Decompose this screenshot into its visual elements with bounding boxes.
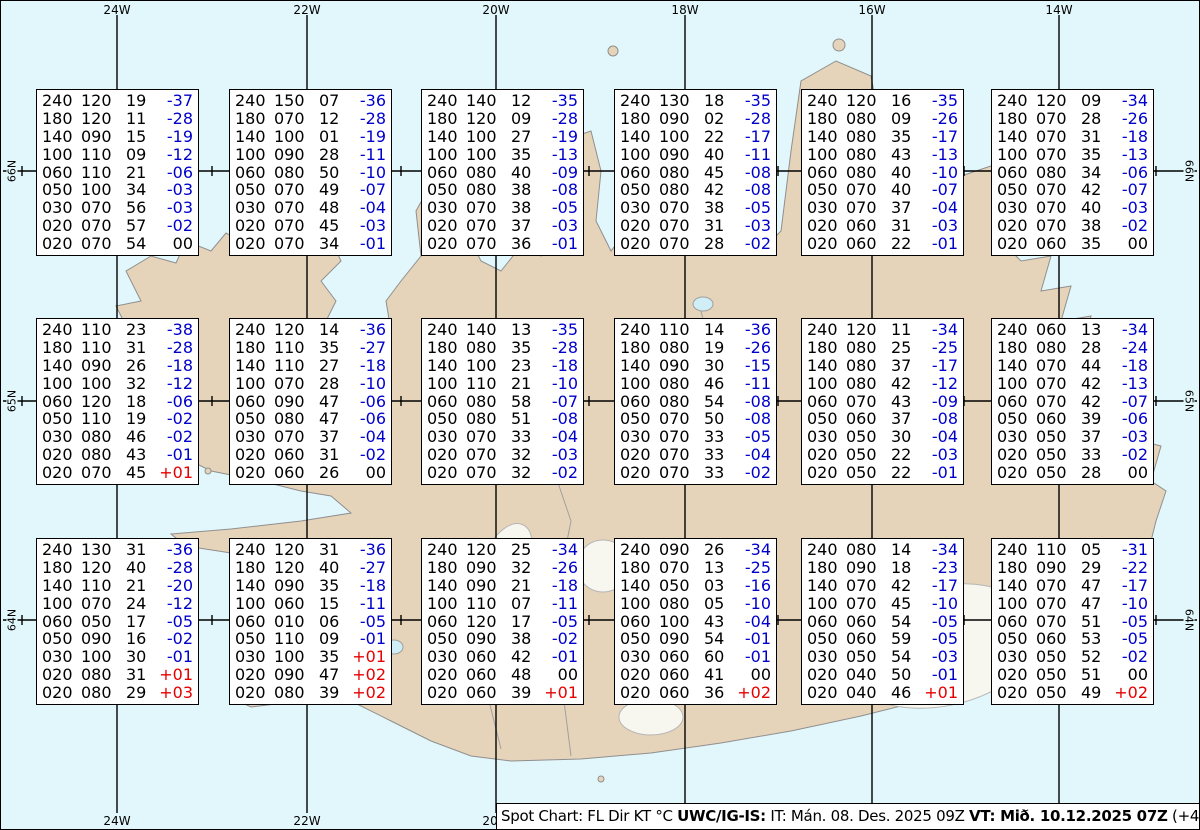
kt-cell: 42 <box>704 181 729 199</box>
dir-cell: 090 <box>274 393 313 411</box>
dir-cell: 120 <box>846 321 885 339</box>
dir-cell: 080 <box>659 595 698 613</box>
dir-cell: 060 <box>1036 235 1075 253</box>
dir-cell: 080 <box>659 164 698 182</box>
fl-cell: 180 <box>42 110 75 128</box>
temp-cell: -06 <box>1112 164 1148 182</box>
dir-cell: 070 <box>274 375 313 393</box>
kt-cell: 38 <box>511 630 536 648</box>
fl-cell: 240 <box>235 92 268 110</box>
temp-cell: -02 <box>735 235 771 253</box>
temp-cell: +03 <box>157 684 193 702</box>
dir-cell: 080 <box>274 164 313 182</box>
fl-cell: 020 <box>620 217 653 235</box>
temp-cell: -08 <box>735 410 771 428</box>
temp-cell: -18 <box>157 357 193 375</box>
fl-cell: 240 <box>620 541 653 559</box>
temp-cell: -35 <box>735 92 771 110</box>
fl-cell: 060 <box>235 164 268 182</box>
dir-cell: 070 <box>659 559 698 577</box>
dir-cell: 070 <box>659 428 698 446</box>
fl-cell: 240 <box>42 321 75 339</box>
spot-box: 24013031-3618012040-2814011021-201000702… <box>36 538 199 705</box>
temp-cell: -09 <box>922 393 958 411</box>
dir-cell: 070 <box>1036 128 1075 146</box>
dir-cell: 120 <box>466 613 505 631</box>
spot-row: 05011019-02 <box>42 410 193 428</box>
kt-cell: 28 <box>319 375 344 393</box>
temp-cell: -05 <box>735 428 771 446</box>
kt-cell: 07 <box>319 92 344 110</box>
dir-cell: 080 <box>846 164 885 182</box>
caption-text-bold: UWC/IG-IS: <box>677 807 766 825</box>
temp-cell: -36 <box>350 92 386 110</box>
temp-cell: 00 <box>1112 235 1148 253</box>
kt-cell: 03 <box>704 577 729 595</box>
spot-row: 02006031-03 <box>807 217 958 235</box>
spot-row: 10007045-10 <box>807 595 958 613</box>
kt-cell: 23 <box>511 357 536 375</box>
kt-cell: 38 <box>511 181 536 199</box>
kt-cell: 46 <box>891 684 916 702</box>
fl-cell: 020 <box>997 684 1030 702</box>
fl-cell: 240 <box>620 92 653 110</box>
spot-row: 18009018-23 <box>807 559 958 577</box>
kt-cell: 56 <box>126 199 151 217</box>
spot-row: 05011009-01 <box>235 630 386 648</box>
temp-cell: -26 <box>1112 110 1148 128</box>
spot-row: 0200603500 <box>997 235 1148 253</box>
kt-cell: 06 <box>319 613 344 631</box>
dir-cell: 070 <box>1036 393 1075 411</box>
fl-cell: 030 <box>620 648 653 666</box>
dir-cell: 070 <box>1036 146 1075 164</box>
dir-cell: 050 <box>1036 446 1075 464</box>
temp-cell: -04 <box>350 199 386 217</box>
fl-cell: 020 <box>807 217 840 235</box>
spot-row: 14011027-18 <box>235 357 386 375</box>
temp-cell: -13 <box>542 146 578 164</box>
spot-row: 24012019-37 <box>42 92 193 110</box>
fl-cell: 050 <box>42 630 75 648</box>
spot-row: 14009030-15 <box>620 357 771 375</box>
spot-row: 05007049-07 <box>235 181 386 199</box>
temp-cell: -07 <box>1112 181 1148 199</box>
dir-cell: 050 <box>1036 648 1075 666</box>
spot-row: 02008039+02 <box>235 684 386 702</box>
dir-cell: 050 <box>846 428 885 446</box>
spot-row: 24012014-36 <box>235 321 386 339</box>
fl-cell: 060 <box>807 613 840 631</box>
temp-cell: -01 <box>922 235 958 253</box>
temp-cell: -28 <box>350 110 386 128</box>
spot-row: 05009038-02 <box>427 630 578 648</box>
kt-cell: 52 <box>1081 648 1106 666</box>
dir-cell: 080 <box>81 684 120 702</box>
fl-cell: 100 <box>42 595 75 613</box>
spot-row: 14010023-18 <box>427 357 578 375</box>
kt-cell: 51 <box>1081 666 1106 684</box>
spot-row: 10011009-12 <box>42 146 193 164</box>
kt-cell: 09 <box>319 630 344 648</box>
kt-cell: 28 <box>1081 339 1106 357</box>
kt-cell: 13 <box>1081 321 1106 339</box>
longitude-label-top: 18W <box>671 4 698 16</box>
temp-cell: -02 <box>157 428 193 446</box>
spot-row: 02007034-01 <box>235 235 386 253</box>
fl-cell: 240 <box>807 321 840 339</box>
temp-cell: -08 <box>922 410 958 428</box>
dir-cell: 070 <box>1036 199 1075 217</box>
fl-cell: 020 <box>42 235 75 253</box>
kt-cell: 38 <box>1081 217 1106 235</box>
kt-cell: 54 <box>126 235 151 253</box>
spot-row: 14009021-18 <box>427 577 578 595</box>
fl-cell: 020 <box>42 684 75 702</box>
temp-cell: -31 <box>1112 541 1148 559</box>
caption-bar: Spot Chart: FL Dir KT °C UWC/IG-IS: IT: … <box>496 803 1199 829</box>
fl-cell: 020 <box>427 446 460 464</box>
kt-cell: 13 <box>511 321 536 339</box>
kt-cell: 31 <box>319 541 344 559</box>
temp-cell: -25 <box>922 339 958 357</box>
dir-cell: 120 <box>466 110 505 128</box>
dir-cell: 070 <box>846 577 885 595</box>
temp-cell: -02 <box>157 410 193 428</box>
temp-cell: -05 <box>735 199 771 217</box>
dir-cell: 070 <box>1036 181 1075 199</box>
fl-cell: 100 <box>42 375 75 393</box>
kt-cell: 11 <box>126 110 151 128</box>
spot-row: 18012040-28 <box>42 559 193 577</box>
dir-cell: 080 <box>846 357 885 375</box>
temp-cell: -11 <box>350 146 386 164</box>
kt-cell: 39 <box>319 684 344 702</box>
kt-cell: 35 <box>511 146 536 164</box>
latitude-label-right: 64N <box>1184 607 1195 633</box>
fl-cell: 020 <box>807 684 840 702</box>
fl-cell: 050 <box>427 410 460 428</box>
dir-cell: 100 <box>466 357 505 375</box>
spot-row: 02007028-02 <box>620 235 771 253</box>
spot-row: 06009047-06 <box>235 393 386 411</box>
fl-cell: 020 <box>620 684 653 702</box>
spot-row: 05006037-08 <box>807 410 958 428</box>
dir-cell: 060 <box>274 464 313 482</box>
fl-cell: 100 <box>997 375 1030 393</box>
fl-cell: 020 <box>427 684 460 702</box>
kt-cell: 42 <box>1081 375 1106 393</box>
dir-cell: 090 <box>81 128 120 146</box>
spot-row: 02007038-02 <box>997 217 1148 235</box>
spot-row: 02008043-01 <box>42 446 193 464</box>
fl-cell: 060 <box>427 613 460 631</box>
latitude-label-right: 65N <box>1184 388 1195 414</box>
spot-row: 06006054-05 <box>807 613 958 631</box>
temp-cell: -08 <box>735 393 771 411</box>
spot-row: 14009035-18 <box>235 577 386 595</box>
spot-box: 24012025-3418009032-2614009021-181001100… <box>421 538 584 705</box>
dir-cell: 090 <box>1036 559 1075 577</box>
fl-cell: 140 <box>997 357 1030 375</box>
spot-row: 10006015-11 <box>235 595 386 613</box>
spot-row: 14005003-16 <box>620 577 771 595</box>
spot-row: 06008054-08 <box>620 393 771 411</box>
kt-cell: 23 <box>126 321 151 339</box>
temp-cell: -37 <box>157 92 193 110</box>
spot-row: 03007038-05 <box>620 199 771 217</box>
spot-row: 06011021-06 <box>42 164 193 182</box>
temp-cell: -12 <box>157 595 193 613</box>
caption-text: Spot Chart: FL Dir KT °C <box>501 807 677 825</box>
kt-cell: 28 <box>1081 464 1106 482</box>
spot-row: 02007033-04 <box>620 446 771 464</box>
lake <box>693 297 713 311</box>
kt-cell: 22 <box>891 464 916 482</box>
spot-row: 06008045-08 <box>620 164 771 182</box>
spot-row: 24008014-34 <box>807 541 958 559</box>
spot-row: 18009032-26 <box>427 559 578 577</box>
temp-cell: -03 <box>542 446 578 464</box>
spot-row: 02005049+02 <box>997 684 1148 702</box>
fl-cell: 180 <box>235 110 268 128</box>
kt-cell: 45 <box>891 595 916 613</box>
temp-cell: -01 <box>542 648 578 666</box>
dir-cell: 110 <box>274 357 313 375</box>
spot-row: 10010032-12 <box>42 375 193 393</box>
dir-cell: 110 <box>81 577 120 595</box>
temp-cell: -09 <box>542 164 578 182</box>
fl-cell: 060 <box>807 393 840 411</box>
temp-cell: -19 <box>157 128 193 146</box>
kt-cell: 27 <box>511 128 536 146</box>
temp-cell: +01 <box>157 464 193 482</box>
dir-cell: 070 <box>274 181 313 199</box>
kt-cell: 35 <box>319 339 344 357</box>
dir-cell: 070 <box>274 428 313 446</box>
temp-cell: -06 <box>157 393 193 411</box>
fl-cell: 050 <box>807 630 840 648</box>
fl-cell: 020 <box>620 464 653 482</box>
fl-cell: 020 <box>997 666 1030 684</box>
temp-cell: -01 <box>350 235 386 253</box>
spot-row: 03005052-02 <box>997 648 1148 666</box>
kt-cell: 01 <box>319 128 344 146</box>
temp-cell: -28 <box>157 110 193 128</box>
dir-cell: 080 <box>659 393 698 411</box>
kt-cell: 22 <box>704 128 729 146</box>
kt-cell: 45 <box>126 464 151 482</box>
fl-cell: 030 <box>997 199 1030 217</box>
dir-cell: 010 <box>274 613 313 631</box>
kt-cell: 25 <box>891 339 916 357</box>
dir-cell: 070 <box>659 446 698 464</box>
kt-cell: 26 <box>126 357 151 375</box>
temp-cell: -02 <box>350 446 386 464</box>
fl-cell: 020 <box>620 446 653 464</box>
fl-cell: 030 <box>997 648 1030 666</box>
kt-cell: 19 <box>126 92 151 110</box>
spot-row: 02005022-01 <box>807 464 958 482</box>
temp-cell: -04 <box>735 446 771 464</box>
longitude-label-top: 24W <box>103 4 130 16</box>
dir-cell: 080 <box>1036 164 1075 182</box>
temp-cell: -35 <box>542 321 578 339</box>
kt-cell: 43 <box>891 146 916 164</box>
fl-cell: 140 <box>235 128 268 146</box>
dir-cell: 070 <box>274 110 313 128</box>
kt-cell: 44 <box>1081 357 1106 375</box>
kt-cell: 19 <box>126 410 151 428</box>
kt-cell: 37 <box>891 199 916 217</box>
spot-row: 02006036+02 <box>620 684 771 702</box>
dir-cell: 120 <box>81 110 120 128</box>
spot-row: 02007032-03 <box>427 446 578 464</box>
spot-row: 06008040-10 <box>807 164 958 182</box>
fl-cell: 240 <box>427 541 460 559</box>
fl-cell: 100 <box>42 146 75 164</box>
temp-cell: -36 <box>350 541 386 559</box>
fl-cell: 030 <box>807 428 840 446</box>
fl-cell: 180 <box>620 339 653 357</box>
spot-box: 24013018-3518009002-2814010022-171000904… <box>614 89 777 256</box>
spot-row: 06005017-05 <box>42 613 193 631</box>
dir-cell: 070 <box>1036 357 1075 375</box>
fl-cell: 140 <box>620 128 653 146</box>
dir-cell: 090 <box>274 577 313 595</box>
kt-cell: 12 <box>511 92 536 110</box>
kt-cell: 37 <box>891 410 916 428</box>
fl-cell: 140 <box>42 357 75 375</box>
kt-cell: 40 <box>319 559 344 577</box>
spot-box: 24014013-3518008035-2814010023-181001102… <box>421 318 584 485</box>
temp-cell: -02 <box>542 630 578 648</box>
fl-cell: 140 <box>235 577 268 595</box>
dir-cell: 070 <box>81 235 120 253</box>
dir-cell: 070 <box>1036 595 1075 613</box>
fl-cell: 050 <box>997 410 1030 428</box>
fl-cell: 180 <box>807 110 840 128</box>
spot-row: 02006022-01 <box>807 235 958 253</box>
temp-cell: -16 <box>735 577 771 595</box>
fl-cell: 100 <box>427 146 460 164</box>
dir-cell: 150 <box>274 92 313 110</box>
spot-row: 03005037-03 <box>997 428 1148 446</box>
fl-cell: 020 <box>42 666 75 684</box>
spot-row: 10007047-10 <box>997 595 1148 613</box>
kt-cell: 50 <box>319 164 344 182</box>
spot-row: 10007035-13 <box>997 146 1148 164</box>
dir-cell: 060 <box>846 613 885 631</box>
spot-row: 05007042-07 <box>997 181 1148 199</box>
dir-cell: 050 <box>1036 666 1075 684</box>
dir-cell: 050 <box>1036 464 1075 482</box>
dir-cell: 070 <box>466 446 505 464</box>
fl-cell: 140 <box>997 577 1030 595</box>
spot-row: 24012016-35 <box>807 92 958 110</box>
temp-cell: 00 <box>542 666 578 684</box>
island <box>205 468 211 474</box>
spot-row: 18009002-28 <box>620 110 771 128</box>
temp-cell: -12 <box>922 375 958 393</box>
spot-box: 24008014-3418009018-2314007042-171000704… <box>801 538 964 705</box>
kt-cell: 33 <box>704 464 729 482</box>
spot-row: 14008037-17 <box>807 357 958 375</box>
fl-cell: 180 <box>235 339 268 357</box>
dir-cell: 130 <box>659 92 698 110</box>
temp-cell: -28 <box>735 110 771 128</box>
spot-box: 24011023-3818011031-2814009026-181001003… <box>36 318 199 485</box>
kt-cell: 40 <box>891 164 916 182</box>
dir-cell: 120 <box>81 92 120 110</box>
dir-cell: 080 <box>81 666 120 684</box>
temp-cell: 00 <box>157 235 193 253</box>
temp-cell: -36 <box>157 541 193 559</box>
dir-cell: 110 <box>81 410 120 428</box>
kt-cell: 18 <box>704 92 729 110</box>
kt-cell: 31 <box>126 339 151 357</box>
temp-cell: -34 <box>1112 92 1148 110</box>
kt-cell: 46 <box>126 428 151 446</box>
spot-row: 18011031-28 <box>42 339 193 357</box>
dir-cell: 070 <box>81 595 120 613</box>
kt-cell: 21 <box>126 577 151 595</box>
spot-row: 24011014-36 <box>620 321 771 339</box>
temp-cell: -17 <box>1112 577 1148 595</box>
fl-cell: 020 <box>235 235 268 253</box>
fl-cell: 020 <box>997 235 1030 253</box>
dir-cell: 050 <box>846 464 885 482</box>
spot-row: 18008025-25 <box>807 339 958 357</box>
spot-row: 05007040-07 <box>807 181 958 199</box>
fl-cell: 020 <box>807 235 840 253</box>
temp-cell: -10 <box>922 164 958 182</box>
dir-cell: 130 <box>81 541 120 559</box>
kt-cell: 47 <box>319 393 344 411</box>
kt-cell: 50 <box>891 666 916 684</box>
spot-row: 02009047+02 <box>235 666 386 684</box>
fl-cell: 140 <box>620 357 653 375</box>
spot-row: 06001006-05 <box>235 613 386 631</box>
spot-row: 06007042-07 <box>997 393 1148 411</box>
kt-cell: 17 <box>511 613 536 631</box>
temp-cell: -13 <box>1112 375 1148 393</box>
dir-cell: 100 <box>81 648 120 666</box>
fl-cell: 140 <box>620 577 653 595</box>
kt-cell: 19 <box>704 339 729 357</box>
spot-row: 02007045-03 <box>235 217 386 235</box>
spot-row: 24012009-34 <box>997 92 1148 110</box>
dir-cell: 110 <box>274 630 313 648</box>
temp-cell: -07 <box>1112 393 1148 411</box>
latitude-label-left: 65N <box>7 388 18 414</box>
dir-cell: 100 <box>81 181 120 199</box>
fl-cell: 240 <box>427 321 460 339</box>
temp-cell: -28 <box>542 339 578 357</box>
fl-cell: 180 <box>42 339 75 357</box>
fl-cell: 020 <box>997 446 1030 464</box>
temp-cell: -08 <box>542 181 578 199</box>
spot-row: 02007037-03 <box>427 217 578 235</box>
fl-cell: 050 <box>235 410 268 428</box>
longitude-label-top: 14W <box>1045 4 1072 16</box>
fl-cell: 140 <box>807 577 840 595</box>
temp-cell: 00 <box>1112 666 1148 684</box>
spot-row: 14011021-20 <box>42 577 193 595</box>
spot-row: 03006042-01 <box>427 648 578 666</box>
spot-row: 18011035-27 <box>235 339 386 357</box>
dir-cell: 080 <box>274 684 313 702</box>
